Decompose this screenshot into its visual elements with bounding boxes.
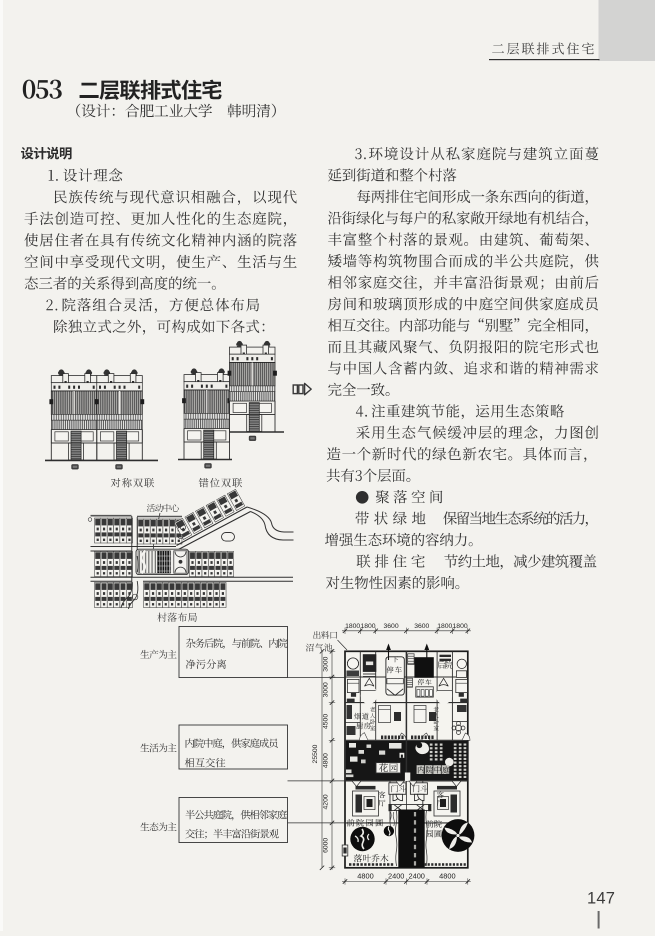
svg-text:4800: 4800 xyxy=(357,872,373,881)
svg-text:1800: 1800 xyxy=(345,623,360,630)
svg-text:1800: 1800 xyxy=(453,623,468,630)
svg-text:6000: 6000 xyxy=(323,838,330,853)
svg-text:3000: 3000 xyxy=(323,682,330,697)
svg-text:1800: 1800 xyxy=(360,623,375,630)
svg-text:4200: 4200 xyxy=(323,794,330,809)
svg-text:4800: 4800 xyxy=(323,753,330,768)
svg-text:4800: 4800 xyxy=(439,872,455,881)
svg-text:25500: 25500 xyxy=(312,744,319,763)
svg-text:1800: 1800 xyxy=(437,623,452,630)
svg-text:2400: 2400 xyxy=(408,872,424,881)
svg-text:3600: 3600 xyxy=(414,623,429,630)
svg-text:3600: 3600 xyxy=(383,623,398,630)
svg-text:147: 147 xyxy=(587,890,615,908)
svg-text:4500: 4500 xyxy=(323,714,330,729)
svg-text:2400: 2400 xyxy=(388,872,404,881)
svg-text:3000: 3000 xyxy=(323,656,330,671)
